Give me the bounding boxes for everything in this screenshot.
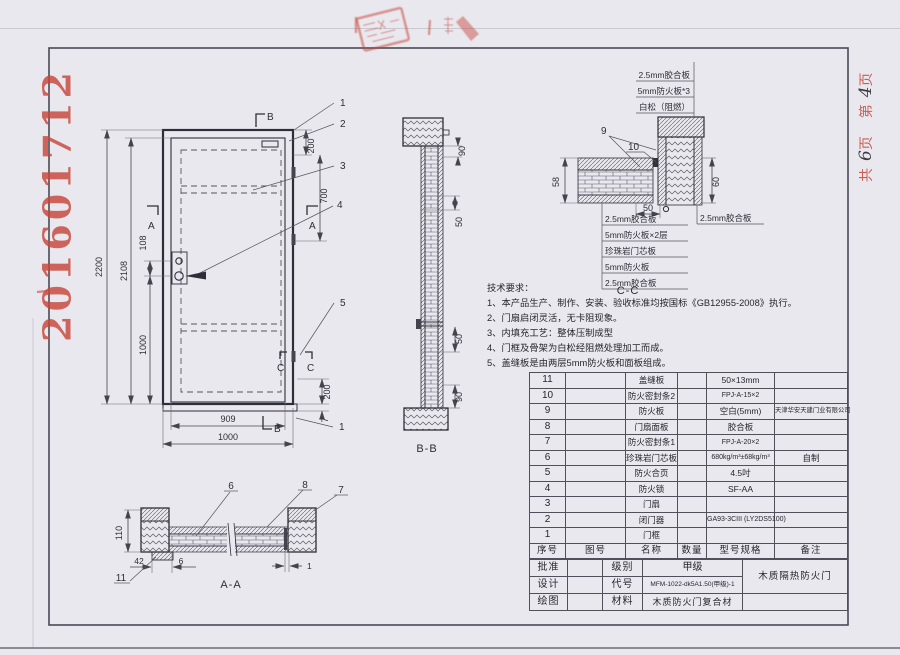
table-row: 6珍珠岩门芯板680kg/m³±68kg/m³自制 bbox=[530, 450, 848, 466]
draft-signature-cell bbox=[568, 594, 603, 611]
bom-cell-qty bbox=[678, 481, 707, 497]
bom-cell-name: 防火板 bbox=[626, 404, 678, 420]
code-label: 代号 bbox=[603, 577, 643, 594]
marker-a-left: A bbox=[148, 221, 155, 232]
callout-4-arrowhead bbox=[185, 272, 206, 280]
aa-dim-6: 6 bbox=[179, 556, 184, 566]
title-block-empty-cell bbox=[743, 594, 848, 611]
marker-c-left: C bbox=[277, 363, 284, 374]
tech-requirement-item: 2、门扇启闭灵活，无卡阻现象。 bbox=[487, 311, 859, 326]
sheet-note-char: 页 bbox=[858, 65, 874, 86]
bom-cell-qty bbox=[678, 388, 707, 404]
cc-leaf-bottom-strip bbox=[578, 195, 653, 203]
bom-cell-note bbox=[775, 528, 848, 544]
bom-cell-note bbox=[775, 373, 848, 389]
product-name: 木质隔热防火门 bbox=[743, 560, 848, 594]
bom-header-row: 序号图号名称数量型号规格备注 bbox=[530, 543, 848, 559]
bom-cell-note: 天津华安天建门业有限公司 bbox=[775, 404, 848, 420]
callout-4: 4 bbox=[337, 200, 343, 211]
bb-dim-upper: 50 bbox=[454, 217, 464, 227]
bom-cell-no: 3 bbox=[530, 497, 566, 513]
bom-cell-qty bbox=[678, 512, 707, 528]
dim-frame-width: 1000 bbox=[218, 432, 238, 442]
dim-sill: 7 bbox=[320, 417, 330, 422]
aa-cover-plate bbox=[152, 552, 173, 560]
aa-left-cap bbox=[141, 508, 169, 521]
aa-right-cap bbox=[288, 508, 316, 521]
design-signature-cell bbox=[568, 577, 603, 594]
bom-cell-qty bbox=[678, 497, 707, 513]
section-bb-view: 90 50 50 90 B-B bbox=[403, 118, 467, 455]
dim-total-height: 2200 bbox=[94, 257, 104, 277]
bom-cell-fig bbox=[566, 528, 626, 544]
bb-dim-head: 90 bbox=[457, 146, 467, 156]
cc-frame-label: 2.5mm胶合板 bbox=[700, 213, 752, 223]
bom-cell-spec: FPJ-A-20×2 bbox=[707, 435, 775, 451]
marker-b-bottom: B bbox=[274, 424, 281, 435]
cc-frame-right-strip bbox=[694, 137, 702, 205]
material-value: 木质防火门复合材 bbox=[643, 594, 743, 611]
bom-cell-no: 8 bbox=[530, 419, 566, 435]
callout-frame-bottom: 1 bbox=[339, 422, 345, 433]
front-elevation-view: 2200 2108 108 1000 200 700 200 7 909 100… bbox=[94, 98, 346, 448]
bom-header-fig: 图号 bbox=[566, 543, 626, 559]
sheet-note-char: 共 bbox=[858, 161, 874, 182]
design-label: 设计 bbox=[530, 577, 568, 594]
aa-dim-1: 1 bbox=[307, 561, 312, 571]
bom-table: 11盖缝板50×13mm 10防火密封条2FPJ-A-15×2 9防火板空白(5… bbox=[529, 372, 848, 559]
bom-cell-name: 门扇 bbox=[626, 497, 678, 513]
table-row: 9防火板空白(5mm)天津华安天建门业有限公司 bbox=[530, 404, 848, 420]
bom-cell-qty bbox=[678, 528, 707, 544]
cc-top-label-fireboard: 5mm防火板*3 bbox=[638, 86, 691, 96]
cc-top-label-plywood: 2.5mm胶合板 bbox=[639, 70, 691, 80]
aa-callout-8: 8 bbox=[302, 480, 308, 491]
callout-1: 1 bbox=[340, 98, 346, 109]
table-row: 8门扇面板胶合板 bbox=[530, 419, 848, 435]
aa-right-pine bbox=[288, 521, 316, 552]
door-leaf-outline bbox=[171, 138, 285, 402]
bom-cell-note bbox=[775, 466, 848, 482]
bom-cell-no: 11 bbox=[530, 373, 566, 389]
bom-cell-no: 10 bbox=[530, 388, 566, 404]
grade-value: 甲级 bbox=[643, 560, 743, 577]
sheet-note-char: 页 bbox=[858, 129, 874, 150]
sheet-note-char: 第 bbox=[858, 97, 874, 118]
door-handle bbox=[175, 272, 183, 280]
aa-callout-6: 6 bbox=[228, 481, 234, 492]
cc-leaf-core bbox=[578, 170, 653, 195]
tables-area: 11盖缝板50×13mm 10防火密封条2FPJ-A-15×2 9防火板空白(5… bbox=[529, 372, 847, 611]
cc-dim-leaf-thickness: 58 bbox=[551, 177, 561, 187]
bb-dimension-lines bbox=[455, 138, 458, 408]
technical-requirements: 技术要求： 1、本产品生产、制作、安装、验收标准均按国标《GB12955-200… bbox=[487, 281, 859, 371]
tech-requirement-item: 5、盖缝板是由两层5mm防火板和面板组成。 bbox=[487, 356, 859, 371]
bom-cell-fig bbox=[566, 388, 626, 404]
bb-top-frame-block bbox=[403, 118, 443, 146]
bom-cell-spec: FPJ-A-15×2 bbox=[707, 388, 775, 404]
marker-a-right: A bbox=[309, 221, 316, 232]
bom-header-spec: 型号规格 bbox=[707, 543, 775, 559]
bom-cell-fig bbox=[566, 481, 626, 497]
bom-cell-qty bbox=[678, 373, 707, 389]
bom-cell-no: 5 bbox=[530, 466, 566, 482]
sheet-total-number: 6 bbox=[856, 150, 876, 161]
table-row: 2闭门器GA93-3CIII (LY2DS5100) bbox=[530, 512, 848, 528]
bom-header-name: 名称 bbox=[626, 543, 678, 559]
bom-cell-name: 防火合页 bbox=[626, 466, 678, 482]
bom-cell-note bbox=[775, 419, 848, 435]
bom-cell-name: 防火密封条1 bbox=[626, 435, 678, 451]
bom-cell-note bbox=[775, 497, 848, 513]
cc-layer-label-1: 2.5mm胶合板 bbox=[605, 214, 657, 224]
bb-dim-bottom: 90 bbox=[454, 392, 464, 402]
aa-seal-strip bbox=[284, 528, 287, 550]
bom-cell-name: 防火锁 bbox=[626, 481, 678, 497]
bom-cell-spec: SF-AA bbox=[707, 481, 775, 497]
table-row: 7防火密封条1FPJ-A-20×2 bbox=[530, 435, 848, 451]
blueprint-page: 2200 2108 108 1000 200 700 200 7 909 100… bbox=[0, 0, 900, 655]
dim-head: 200 bbox=[306, 138, 316, 153]
bom-cell-no: 9 bbox=[530, 404, 566, 420]
aa-view-label: A-A bbox=[220, 579, 241, 591]
cc-layer-label-3: 珍珠岩门芯板 bbox=[605, 246, 657, 256]
aa-dim-42: 42 bbox=[134, 556, 144, 566]
aa-callout-11: 11 bbox=[116, 573, 127, 584]
bom-cell-name: 珍珠岩门芯板 bbox=[626, 450, 678, 466]
bom-cell-name: 门扇面板 bbox=[626, 419, 678, 435]
bom-cell-spec bbox=[707, 528, 775, 544]
bb-core-board bbox=[425, 146, 438, 408]
cc-hinge-pin bbox=[663, 206, 668, 211]
lock-plate bbox=[172, 252, 187, 284]
bb-dim-lower: 50 bbox=[454, 334, 464, 344]
bom-cell-qty bbox=[678, 419, 707, 435]
cc-frame-pine bbox=[666, 137, 694, 205]
bb-face-board-right bbox=[438, 146, 443, 408]
bom-cell-no: 2 bbox=[530, 512, 566, 528]
tech-requirement-item: 4、门框及骨架为白松经阻燃处理加工而成。 bbox=[487, 341, 859, 356]
cc-seal-strip bbox=[653, 158, 658, 167]
front-dimension-lines bbox=[107, 130, 322, 444]
dim-lock-spacing: 108 bbox=[138, 235, 148, 250]
bom-cell-spec bbox=[707, 497, 775, 513]
table-row: 11盖缝板50×13mm bbox=[530, 373, 848, 389]
bom-cell-note bbox=[775, 388, 848, 404]
bom-cell-qty bbox=[678, 466, 707, 482]
dim-lower-side: 200 bbox=[322, 384, 332, 399]
bom-header-qty: 数量 bbox=[678, 543, 707, 559]
door-closer-plate bbox=[262, 141, 278, 147]
bom-cell-name: 盖缝板 bbox=[626, 373, 678, 389]
callout-2: 2 bbox=[340, 119, 346, 130]
bom-cell-fig bbox=[566, 435, 626, 451]
cc-layer-label-4: 5mm防火板 bbox=[605, 262, 650, 272]
bom-cell-name: 防火密封条2 bbox=[626, 388, 678, 404]
bom-cell-fig bbox=[566, 450, 626, 466]
cc-callout-10: 10 bbox=[628, 142, 640, 153]
bom-cell-no: 4 bbox=[530, 481, 566, 497]
tech-requirement-item: 1、本产品生产、制作、安装、验收标准均按国标《GB12955-2008》执行。 bbox=[487, 296, 859, 311]
table-row: 4防火锁SF-AA bbox=[530, 481, 848, 497]
bom-cell-qty bbox=[678, 404, 707, 420]
bb-view-label: B-B bbox=[416, 443, 437, 455]
material-label: 材料 bbox=[603, 594, 643, 611]
cc-dim-overlap: 50 bbox=[643, 203, 653, 213]
title-block-table: 批准 级别 甲级 木质隔热防火门 设计 代号 MFM-1022-dk5A1.50… bbox=[529, 559, 848, 611]
bom-cell-fig bbox=[566, 512, 626, 528]
callout-5: 5 bbox=[340, 298, 346, 309]
document-number-stamp: 201601712 bbox=[35, 68, 80, 342]
bb-top-seal bbox=[443, 130, 449, 135]
cc-dim-frame-thickness: 60 bbox=[711, 177, 721, 187]
callout-3: 3 bbox=[340, 161, 346, 172]
code-value: MFM-1022-dk5A1.50(甲级)-1 bbox=[643, 577, 743, 594]
bb-bottom-frame-block bbox=[404, 408, 448, 430]
title-block-row: 绘图 材料 木质防火门复合材 bbox=[530, 594, 848, 611]
bom-header-no: 序号 bbox=[530, 543, 566, 559]
bom-cell-name: 门框 bbox=[626, 528, 678, 544]
bom-cell-spec: GA93-3CIII (LY2DS5100) bbox=[707, 512, 775, 528]
bom-cell-fig bbox=[566, 373, 626, 389]
detail-cc-view: 58 60 50 9 10 2.5mm胶合板 5mm防火板*3 白松（阻燃） 2… bbox=[551, 62, 764, 297]
table-row: 1门框 bbox=[530, 528, 848, 544]
bom-cell-no: 7 bbox=[530, 435, 566, 451]
sheet-page-note: 共6页 第4页 bbox=[856, 65, 876, 182]
bom-cell-fig bbox=[566, 466, 626, 482]
section-aa-view: 110 42 6 1 6 8 7 11 A-A bbox=[114, 480, 348, 591]
cc-layer-label-2: 5mm防火板×2层 bbox=[605, 230, 668, 240]
table-row: 5防火合页4.5吋 bbox=[530, 466, 848, 482]
aa-left-pine bbox=[141, 521, 169, 552]
bom-cell-fig bbox=[566, 497, 626, 513]
marker-c-right: C bbox=[307, 363, 314, 374]
approve-signature-cell bbox=[568, 560, 603, 577]
bom-cell-fig bbox=[566, 419, 626, 435]
cc-callout-9: 9 bbox=[601, 126, 607, 137]
bb-face-board-left bbox=[421, 146, 425, 408]
bom-cell-qty bbox=[678, 435, 707, 451]
bom-cell-qty bbox=[678, 450, 707, 466]
bom-cell-spec: 4.5吋 bbox=[707, 466, 775, 482]
marker-b-top: B bbox=[267, 112, 274, 123]
cc-leaf-top-strip bbox=[578, 158, 653, 170]
bom-cell-fig bbox=[566, 404, 626, 420]
title-block-row: 批准 级别 甲级 木质隔热防火门 bbox=[530, 560, 848, 577]
bom-cell-spec: 680kg/m³±68kg/m³ bbox=[707, 450, 775, 466]
bom-cell-note: 自制 bbox=[775, 450, 848, 466]
bom-header-note: 备注 bbox=[775, 543, 848, 559]
cc-frame-cap bbox=[658, 117, 704, 137]
dim-leaf-width: 909 bbox=[220, 414, 235, 424]
tech-requirement-item: 3、内填充工艺：整体压制成型 bbox=[487, 326, 859, 341]
bom-cell-spec: 空白(5mm) bbox=[707, 404, 775, 420]
bom-cell-note bbox=[775, 481, 848, 497]
cc-top-label-pine: 白松（阻燃） bbox=[639, 102, 690, 112]
door-frame-outline bbox=[163, 130, 293, 404]
bom-cell-note bbox=[775, 435, 848, 451]
bom-cell-no: 1 bbox=[530, 528, 566, 544]
dim-leaf-height: 2108 bbox=[119, 261, 129, 281]
table-row: 10防火密封条2FPJ-A-15×2 bbox=[530, 388, 848, 404]
table-row: 3门扇 bbox=[530, 497, 848, 513]
bom-cell-no: 6 bbox=[530, 450, 566, 466]
grade-label: 级别 bbox=[603, 560, 643, 577]
aa-dim-frame-height: 110 bbox=[114, 526, 124, 540]
tech-requirements-title: 技术要求： bbox=[487, 281, 859, 296]
bom-cell-spec: 胶合板 bbox=[707, 419, 775, 435]
dim-upper-side: 700 bbox=[319, 188, 329, 203]
approve-label: 批准 bbox=[530, 560, 568, 577]
bom-cell-name: 闭门器 bbox=[626, 512, 678, 528]
sheet-page-number: 4 bbox=[856, 86, 876, 97]
red-stamp-1 bbox=[357, 8, 410, 51]
cc-frame-left-strip bbox=[658, 137, 666, 205]
draft-label: 绘图 bbox=[530, 594, 568, 611]
aa-callout-7: 7 bbox=[338, 485, 344, 496]
dim-lock-to-bottom: 1000 bbox=[138, 335, 148, 355]
bom-cell-spec: 50×13mm bbox=[707, 373, 775, 389]
